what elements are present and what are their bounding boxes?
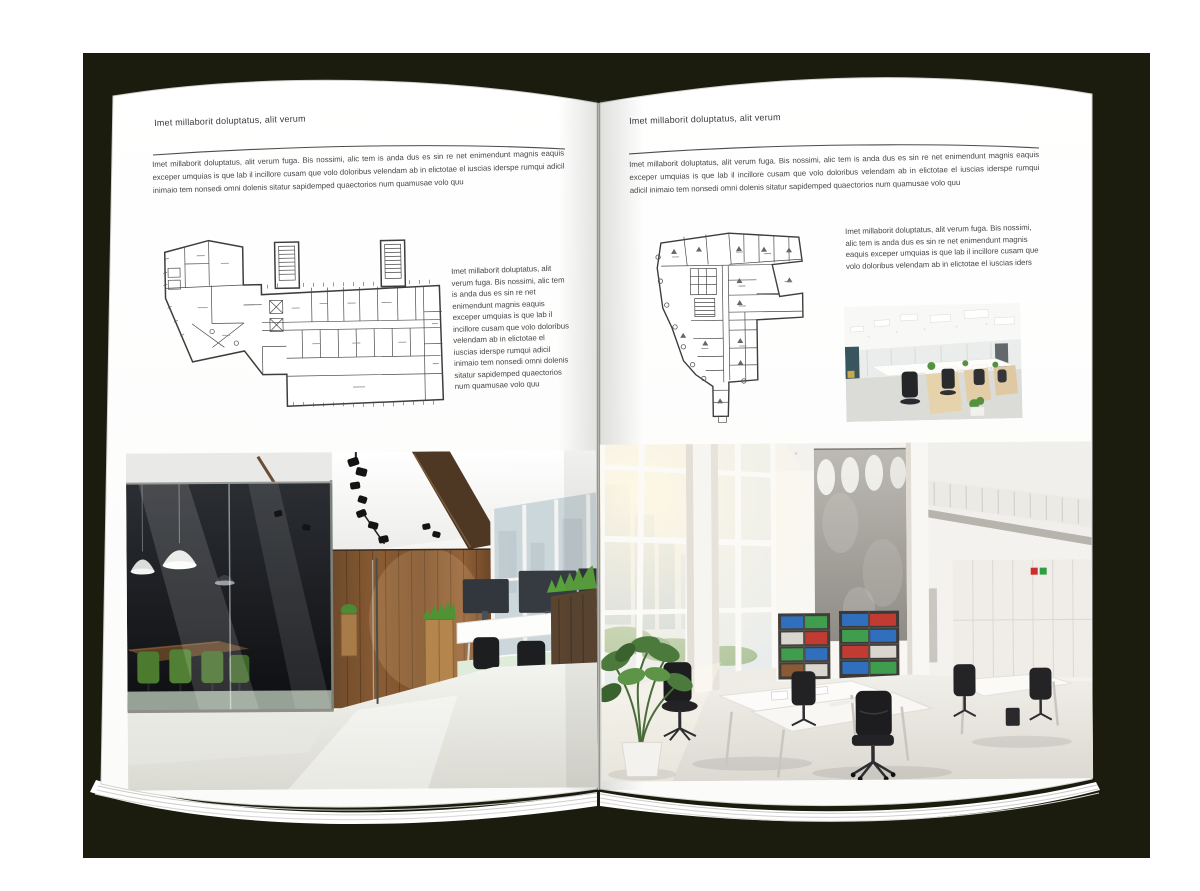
right-office-photo [600,441,1093,781]
right-floor-plan [644,219,840,426]
magazine-spread-mockup: Imet millaborit doluptatus, alit verum I… [0,0,1200,891]
left-page-header: Imet millaborit doluptatus, alit verum [154,114,306,128]
left-page: Imet millaborit doluptatus, alit verum I… [113,96,597,790]
right-page-header: Imet millaborit doluptatus, alit verum [629,112,781,126]
left-page-side-text: Imet millaborit doluptatus, alit verum f… [451,262,571,392]
right-page: Imet millaborit doluptatus, alit verum I… [600,94,1092,786]
left-office-photo [126,450,598,790]
small-office-photo [844,303,1023,422]
right-page-side-text: Imet millaborit doluptatus, alit verum f… [845,222,1043,272]
waste-bin [1006,708,1020,726]
first-aid-sign [1031,568,1038,575]
left-floor-plan [150,223,449,424]
